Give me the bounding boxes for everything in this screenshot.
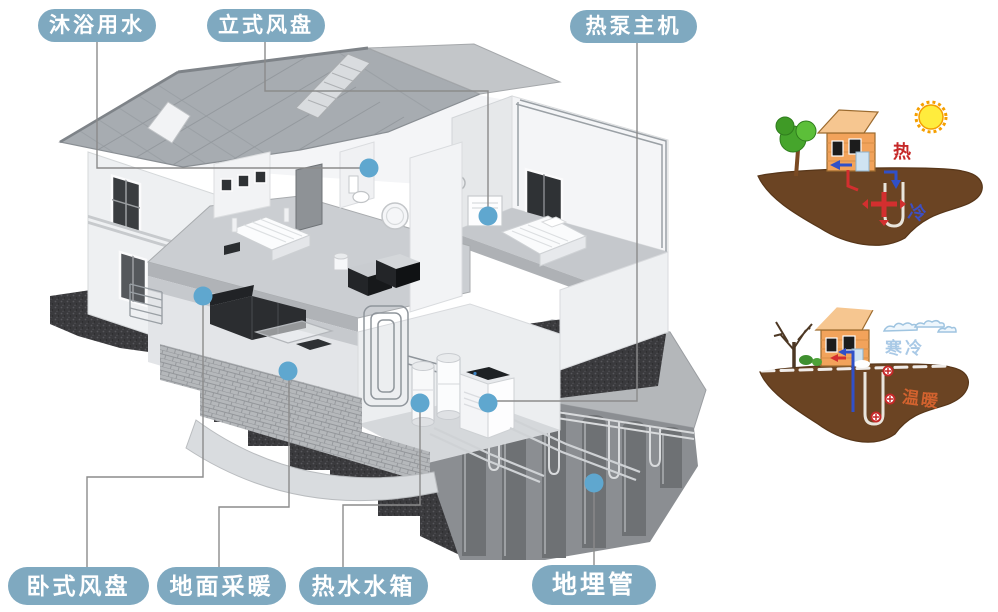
marker-dot-heat-pump bbox=[479, 394, 498, 413]
summer-ground bbox=[758, 168, 982, 245]
partition-wall bbox=[410, 142, 462, 312]
snow-pile bbox=[854, 360, 870, 368]
sun-icon bbox=[916, 102, 946, 132]
inset-winter: 寒冷 温暖 bbox=[760, 305, 968, 442]
marker-dot-vertical-fan-coil bbox=[479, 207, 498, 226]
summer-air-label: 热 bbox=[893, 141, 911, 162]
summer-house bbox=[818, 110, 878, 171]
callout-label-heat-pump-main-unit: 热泵主机 bbox=[570, 10, 697, 43]
marker-dot-hot-water-tank bbox=[411, 394, 430, 413]
marker-dot-shower-water bbox=[360, 159, 379, 178]
inset-summer: 热 冷 bbox=[758, 102, 982, 245]
callout-label-vertical-fan-coil: 立式风盘 bbox=[207, 9, 325, 42]
callout-label-floor-heating: 地面采暖 bbox=[157, 567, 286, 605]
canister bbox=[334, 253, 348, 270]
bush bbox=[799, 355, 813, 365]
marker-dot-floor-heating bbox=[279, 362, 298, 381]
winter-air-label: 寒冷 bbox=[885, 338, 925, 358]
marker-dot-buried-pipe bbox=[585, 474, 604, 493]
callout-label-shower-water: 沐浴用水 bbox=[38, 9, 156, 42]
callout-label-buried-pipe: 地埋管 bbox=[532, 565, 656, 605]
marker-dot-horizontal-fan-coil bbox=[194, 287, 213, 306]
toilet bbox=[349, 176, 358, 193]
callout-label-horizontal-fan-coil: 卧式风盘 bbox=[8, 567, 149, 605]
heat-pump-system-illustration: 热 冷 bbox=[0, 0, 998, 612]
summer-underground-label: 冷 bbox=[906, 201, 927, 225]
callout-label-hot-water-tank: 热水水箱 bbox=[299, 567, 428, 605]
cloud-icons bbox=[884, 321, 956, 332]
summer-roof bbox=[818, 110, 878, 133]
summer-tree bbox=[776, 117, 816, 176]
diagram-canvas: 热 冷 bbox=[0, 0, 998, 612]
bathtub bbox=[382, 203, 408, 229]
interior-door bbox=[296, 164, 322, 231]
